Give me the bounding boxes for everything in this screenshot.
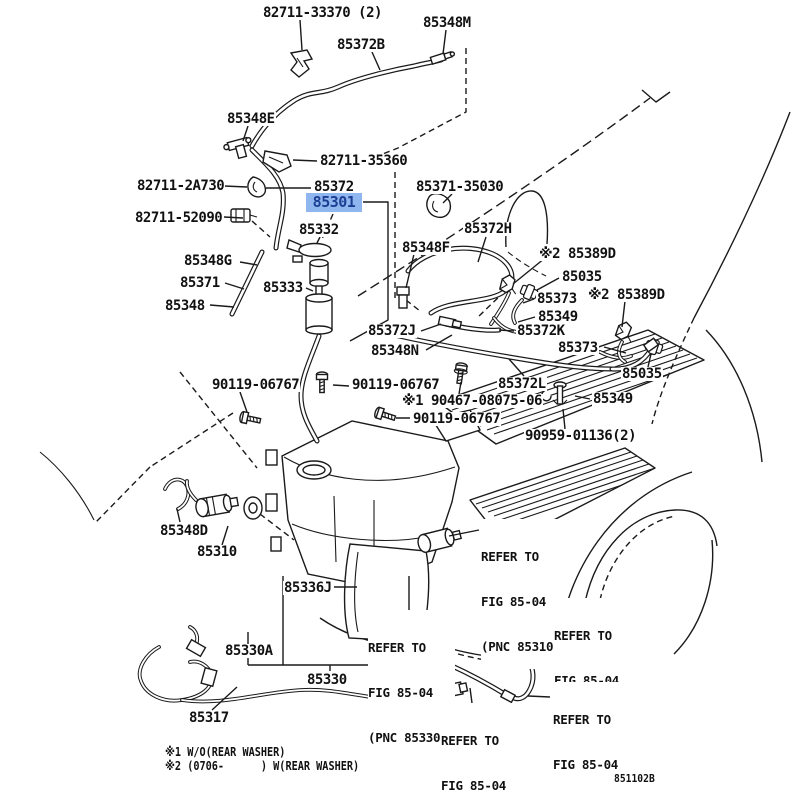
- selected-part-label-85301[interactable]: 85301: [306, 193, 362, 212]
- part-label-90119-06767-2[interactable]: 90119-06767: [351, 378, 440, 392]
- part-label-85332[interactable]: 85332: [298, 223, 340, 237]
- part-label-85371-35030[interactable]: 85371-35030: [415, 180, 504, 194]
- part-label-85373-1[interactable]: 85373: [536, 292, 578, 306]
- part-label-85372l[interactable]: 85372L: [497, 377, 547, 391]
- part-label-82711-52090[interactable]: 82711-52090: [134, 211, 223, 225]
- refer-note-line: REFER TO: [481, 549, 568, 564]
- part-label-82711-2a730[interactable]: 82711-2A730: [136, 179, 225, 193]
- part-label-85317[interactable]: 85317: [188, 711, 230, 725]
- part-label-90119-06767-3[interactable]: 90119-06767: [412, 412, 501, 426]
- part-label-90467-08075[interactable]: ※1 90467-08075-06: [401, 394, 543, 408]
- part-label-85348m[interactable]: 85348M: [422, 16, 472, 30]
- refer-note-line: REFER TO: [553, 712, 640, 727]
- part-label-85310[interactable]: 85310: [196, 545, 238, 559]
- part-label-90119-06767-1[interactable]: 90119-06767: [211, 378, 300, 392]
- refer-note-line: FIG 85-04: [441, 778, 528, 793]
- part-label-85035-2[interactable]: 85035: [621, 367, 663, 381]
- footnote-1: ※1 W/O(REAR WASHER): [165, 746, 285, 759]
- part-label-85372j[interactable]: 85372J: [367, 324, 417, 338]
- part-label-85372k[interactable]: 85372K: [516, 324, 566, 338]
- part-label-90959-01136[interactable]: 90959-01136(2): [524, 429, 637, 443]
- part-label-85373-2[interactable]: 85373: [557, 341, 599, 355]
- parts-diagram-page: 82711-33370 (2) 85348M 85372B 85348E 827…: [0, 0, 800, 800]
- refer-note-line: FIG 85-04: [553, 757, 640, 772]
- part-label-82711-33370[interactable]: 82711-33370 (2): [262, 6, 383, 20]
- part-label-85349-2[interactable]: 85349: [592, 392, 634, 406]
- part-label-85389d-1[interactable]: ※2 85389D: [538, 247, 617, 261]
- part-label-85371[interactable]: 85371: [179, 276, 221, 290]
- part-label-85348[interactable]: 85348: [164, 299, 206, 313]
- part-label-85349-1[interactable]: 85349: [537, 310, 579, 324]
- part-label-85348f[interactable]: 85348F: [401, 241, 451, 255]
- part-label-85348d[interactable]: 85348D: [159, 524, 209, 538]
- part-label-85336j[interactable]: 85336J: [283, 581, 333, 595]
- footnote-2: ※2 (0706- ) W(REAR WASHER): [165, 760, 359, 773]
- part-label-85389d-2[interactable]: ※2 85389D: [587, 288, 666, 302]
- refer-note-85371r: REFER TO FIG 85-04 (PNC 85371R): [441, 703, 528, 800]
- part-label-85372[interactable]: 85372: [313, 180, 355, 194]
- part-label-85330[interactable]: 85330: [306, 673, 348, 687]
- part-label-85372b[interactable]: 85372B: [336, 38, 386, 52]
- part-label-85348n[interactable]: 85348N: [370, 344, 420, 358]
- part-label-85035-1[interactable]: 85035: [561, 270, 603, 284]
- part-label-85348g[interactable]: 85348G: [183, 254, 233, 268]
- part-label-85372h[interactable]: 85372H: [463, 222, 513, 236]
- refer-note-line: FIG 85-04: [368, 685, 455, 700]
- part-label-85348e[interactable]: 85348E: [226, 112, 276, 126]
- part-label-85330a[interactable]: 85330A: [224, 644, 274, 658]
- refer-note-line: REFER TO: [554, 628, 641, 643]
- figure-code: 851102B: [614, 772, 655, 785]
- part-label-85333[interactable]: 85333: [262, 281, 304, 295]
- refer-note-line: REFER TO: [441, 733, 528, 748]
- part-label-82711-35360[interactable]: 82711-35360: [319, 154, 408, 168]
- refer-note-line: REFER TO: [368, 640, 455, 655]
